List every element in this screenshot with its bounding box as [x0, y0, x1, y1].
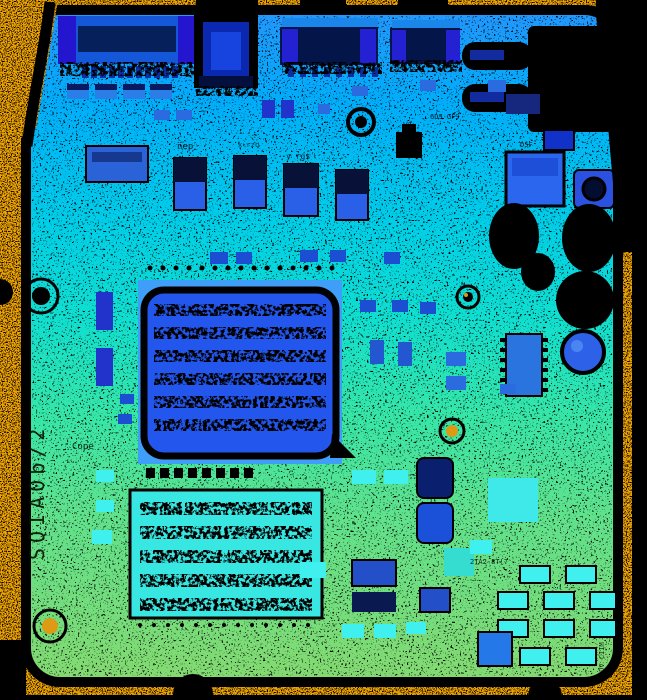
soic-right-pins-l-4 — [500, 378, 505, 382]
qfp-texture-stripes-0 — [140, 502, 312, 515]
silk-vi: VI — [403, 121, 413, 130]
stacked-dark-module — [417, 458, 453, 498]
soic-right-pins-l-3 — [500, 368, 505, 372]
black-bottomleft-corner — [0, 640, 26, 700]
round-cap-highlight — [571, 340, 583, 352]
header-right-tab-left — [392, 30, 406, 62]
ffc-connector-slot — [78, 26, 176, 52]
black-right-column — [632, 0, 647, 700]
layers-root: SQIA0b/2CopenepT 24x rzcy rg$VI6D9 GF9D5… — [0, 0, 647, 700]
elcap-2 — [562, 204, 616, 272]
qfp-pad-row-4 — [202, 468, 211, 478]
res-d1 — [520, 648, 550, 665]
p32 — [374, 624, 396, 638]
ic-small-topright — [506, 94, 540, 114]
via-row-top-3 — [187, 266, 192, 271]
res-a2 — [566, 566, 596, 583]
black-top-seg-2 — [300, 0, 346, 10]
p23 — [446, 352, 466, 366]
stacked-blue-module — [417, 503, 453, 543]
via-row-top-8 — [252, 266, 257, 271]
via-row-bottom-9 — [264, 623, 268, 627]
header-right-tab-right — [446, 30, 460, 62]
p22 — [398, 342, 412, 366]
bga-texture-stripes-2 — [154, 350, 326, 362]
bga-texture-stripes-4 — [154, 396, 326, 408]
soic-right-pins-l-1 — [500, 348, 505, 352]
p17 — [118, 414, 132, 424]
black-top-seg-1 — [196, 0, 258, 12]
qfp-pad-row-1 — [160, 468, 169, 478]
round-cap-blue — [562, 331, 604, 373]
via-row-bottom-2 — [166, 623, 170, 627]
via-row-bottom-11 — [292, 623, 296, 627]
p14 — [96, 292, 113, 330]
screw-mid-glint — [464, 293, 468, 297]
cap-tl-4t — [150, 84, 172, 90]
via-row-bottom-5 — [208, 623, 212, 627]
bga-texture-stripes-1 — [154, 327, 326, 339]
qfp-pad-row-6 — [230, 468, 239, 478]
res-b2 — [544, 592, 574, 609]
silk-2ta2: 2TA2 8T!7 — [470, 558, 508, 566]
screw-mid-core — [463, 292, 473, 302]
res-d2 — [566, 648, 596, 665]
via-row-bottom-6 — [222, 623, 226, 627]
p25 — [500, 384, 516, 394]
p34 — [470, 540, 492, 554]
p31 — [342, 624, 364, 638]
blue-module-shade — [512, 158, 558, 176]
ic-bottom-3 — [420, 588, 450, 612]
via-row-top-10 — [278, 266, 283, 271]
qfp-pad-row-2 — [174, 468, 183, 478]
tact-button-plunger — [583, 178, 605, 200]
qfp-texture-stripes-4 — [140, 598, 312, 611]
soic-right-pins-l-0 — [500, 338, 505, 342]
via-row-top-5 — [213, 266, 218, 271]
usb-pad-shadow — [196, 86, 258, 96]
via-row-top-14 — [330, 266, 335, 271]
prong-glint-bottom — [470, 92, 504, 102]
soic-left-shade — [92, 152, 142, 162]
soic-right-pins-r-3 — [543, 368, 548, 372]
testpoint-gold-core — [446, 425, 458, 437]
sot-chip-2-top — [234, 156, 266, 180]
ic-bottom-1 — [352, 560, 396, 586]
p5 — [318, 104, 330, 114]
silk-yrg: y rg$ — [286, 152, 310, 161]
header-mid-tab-left — [282, 29, 298, 63]
qfp-texture-stripes-2 — [140, 550, 312, 563]
via-row-bottom-12 — [306, 623, 310, 627]
res-c3 — [590, 620, 616, 637]
soic-right-pins-r-5 — [543, 388, 548, 392]
p26 — [96, 470, 114, 482]
p4 — [281, 100, 294, 118]
p12 — [330, 250, 346, 262]
via-row-bottom-8 — [250, 623, 254, 627]
p7 — [420, 80, 436, 91]
header-mid-tab-right — [360, 29, 376, 63]
usb-connector-tongue — [211, 32, 241, 70]
power-jack-tab — [544, 130, 574, 150]
header-right-shadow — [390, 60, 462, 72]
via-row-top-6 — [226, 266, 231, 271]
blue-part-br — [478, 632, 512, 666]
screw-left-core — [32, 287, 50, 305]
silk-xrzc: x rzc — [238, 141, 259, 149]
header-mid-shadow — [282, 62, 382, 74]
ffc-connector-tab-left — [58, 16, 76, 64]
via-row-bottom-0 — [138, 623, 142, 627]
p28 — [92, 530, 112, 544]
via-row-bottom-1 — [152, 623, 156, 627]
silk-nep: nep — [177, 142, 193, 152]
cap-tl-2t — [95, 84, 117, 90]
via-row-top-4 — [200, 266, 205, 271]
screw-bl-core — [42, 618, 58, 634]
via-row-top-0 — [148, 266, 153, 271]
soic-right-pins-r-4 — [543, 378, 548, 382]
header-mid-strip — [282, 18, 378, 27]
qfp-pad-row-0 — [146, 468, 155, 478]
cap-bottom-1 — [300, 562, 326, 578]
qfp-texture-stripes-1 — [140, 526, 312, 539]
elcap-3 — [556, 271, 614, 329]
via-row-top-9 — [265, 266, 270, 271]
bga-texture-stripes-0 — [154, 304, 326, 316]
p11 — [300, 250, 318, 262]
pcb-depth-map-image: False-color depth-map scan of a printed … — [0, 0, 647, 700]
qfp-pad-row-5 — [216, 468, 225, 478]
qfp-texture-stripes-3 — [140, 574, 312, 587]
p1 — [154, 110, 170, 120]
silk-gf9: 6D9 GF9 — [430, 113, 460, 121]
via-row-bottom-10 — [278, 623, 282, 627]
sot-chip-1-top — [174, 158, 206, 182]
cap-tl-1t — [67, 84, 89, 90]
p30 — [384, 470, 408, 484]
ffc-pin-shadow — [60, 62, 196, 76]
qfp-pad-row-7 — [244, 468, 253, 478]
p21 — [370, 340, 384, 364]
p19 — [392, 300, 408, 312]
soic-right-pins-r-1 — [543, 348, 548, 352]
p27 — [96, 500, 114, 512]
via-row-top-11 — [291, 266, 296, 271]
elcap-4 — [521, 253, 555, 291]
res-b3 — [590, 592, 616, 609]
silk-t24: T 24 — [84, 64, 103, 73]
res-a1 — [520, 566, 550, 583]
board-id-vertical: SQIA0b/2 — [25, 424, 49, 560]
silk-jdv: JDV CIIM — [598, 642, 606, 676]
via-row-top-1 — [161, 266, 166, 271]
via-row-top-2 — [174, 266, 179, 271]
via-row-bottom-7 — [236, 623, 240, 627]
p20 — [420, 302, 436, 314]
sot-chip-3-top — [284, 164, 318, 188]
p29 — [352, 470, 376, 484]
p24 — [446, 376, 466, 390]
header-right-strip — [392, 20, 460, 28]
soic-right-pins-r-0 — [543, 338, 548, 342]
black-top-seg-3 — [398, 0, 448, 10]
p8 — [488, 80, 506, 92]
via-row-top-7 — [239, 266, 244, 271]
sot-chip-4-top — [336, 170, 368, 194]
qfp-pad-row-3 — [188, 468, 197, 478]
soic-right-pins-l-2 — [500, 358, 505, 362]
p16 — [120, 394, 134, 404]
via-row-bottom-3 — [180, 623, 184, 627]
p18 — [360, 300, 376, 312]
p10 — [236, 252, 252, 264]
p33 — [406, 622, 426, 634]
cap-tl-3t — [123, 84, 145, 90]
bga-texture-stripes-5 — [154, 419, 326, 431]
silk-cope: Cope — [72, 442, 94, 452]
pcb-depth-map-screenshot: False-color depth-map scan of a printed … — [0, 0, 647, 700]
soic-right-pins-r-2 — [543, 358, 548, 362]
ic-bottom-2 — [352, 592, 396, 612]
silk-d5f: D5F — [520, 141, 533, 149]
bga-texture-stripes-3 — [154, 373, 326, 385]
via-row-bottom-4 — [194, 623, 198, 627]
soic-left — [86, 146, 148, 182]
p13 — [384, 252, 400, 264]
p15 — [96, 348, 113, 386]
via-row-top-13 — [317, 266, 322, 271]
screw-top-core — [355, 116, 367, 128]
p9 — [210, 252, 228, 264]
p3 — [262, 100, 275, 118]
p6 — [352, 86, 368, 96]
ffc-connector-tab-right — [178, 16, 196, 64]
p2 — [176, 110, 192, 120]
prong-glint-top — [470, 50, 504, 60]
via-row-top-12 — [304, 266, 309, 271]
res-c2 — [544, 620, 574, 637]
res-b1 — [498, 592, 528, 609]
cyan-pad-square — [488, 478, 538, 522]
transistor-to252 — [396, 132, 422, 158]
